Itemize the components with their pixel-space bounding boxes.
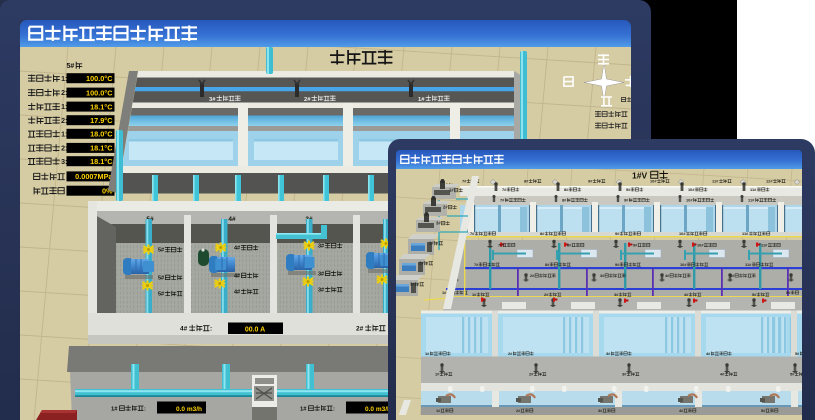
svg-text:12#: 12#	[766, 178, 773, 183]
svg-text:100.0°C: 100.0°C	[86, 74, 113, 83]
svg-text:3#: 3#	[436, 221, 441, 226]
svg-text:2#: 2#	[419, 261, 424, 266]
svg-text:4#: 4#	[234, 273, 240, 279]
svg-text:2#: 2#	[304, 97, 311, 103]
svg-text:1:: 1:	[61, 131, 67, 138]
svg-text:3#: 3#	[318, 244, 324, 250]
svg-text:3#: 3#	[209, 97, 216, 103]
svg-text:10#: 10#	[697, 242, 704, 247]
svg-text:10#: 10#	[688, 187, 695, 192]
svg-text:11#: 11#	[750, 187, 757, 192]
svg-text:11#: 11#	[742, 231, 749, 236]
svg-text:3#: 3#	[410, 282, 415, 287]
svg-text:1#V: 1#V	[632, 171, 647, 181]
svg-text:1#: 1#	[449, 188, 454, 193]
svg-text::: :	[333, 406, 335, 412]
svg-text:3:: 3:	[61, 159, 67, 166]
svg-text:1#: 1#	[111, 406, 118, 412]
svg-text:3#: 3#	[318, 271, 324, 277]
svg-text:10#: 10#	[650, 178, 657, 183]
svg-text:11#: 11#	[748, 197, 755, 202]
svg-text:18.0°C: 18.0°C	[90, 130, 113, 139]
svg-text:0.0 m3/h: 0.0 m3/h	[176, 406, 202, 413]
svg-text:9#: 9#	[588, 178, 593, 183]
svg-text:11#: 11#	[745, 262, 752, 267]
svg-text:100.0°C: 100.0°C	[86, 88, 113, 97]
svg-text:5#: 5#	[158, 275, 164, 281]
svg-text:4#: 4#	[234, 289, 240, 295]
svg-text:2:: 2:	[61, 118, 67, 125]
svg-text:4#: 4#	[234, 246, 240, 252]
svg-text:2#: 2#	[356, 326, 364, 333]
svg-text:2#: 2#	[443, 205, 448, 210]
svg-text:1:: 1:	[61, 76, 67, 83]
svg-text:4#: 4#	[180, 326, 188, 333]
svg-text:11#: 11#	[712, 178, 719, 183]
svg-text:18.1°C: 18.1°C	[90, 144, 113, 153]
svg-text:10#: 10#	[680, 262, 687, 267]
svg-text:7#: 7#	[462, 178, 467, 183]
svg-text:3#: 3#	[318, 287, 324, 293]
svg-text:2:: 2:	[61, 90, 67, 97]
svg-text::: :	[144, 406, 146, 412]
svg-text:10#: 10#	[679, 231, 686, 236]
svg-text:5#: 5#	[158, 248, 164, 254]
svg-text::: :	[210, 326, 212, 333]
svg-text:4#: 4#	[228, 216, 236, 223]
svg-text:18.1°C: 18.1°C	[90, 102, 113, 111]
svg-text:1#: 1#	[300, 406, 307, 412]
svg-text:5#: 5#	[158, 291, 164, 297]
svg-text:5#: 5#	[67, 63, 75, 70]
svg-text:17.9°C: 17.9°C	[90, 116, 113, 125]
svg-text:1#: 1#	[429, 241, 434, 246]
svg-text:1:: 1:	[61, 104, 67, 111]
svg-text:00.0 A: 00.0 A	[245, 327, 265, 334]
svg-text:18.1°C: 18.1°C	[90, 157, 113, 166]
svg-text:0.0007MPa: 0.0007MPa	[75, 172, 113, 181]
svg-text:1#: 1#	[418, 97, 425, 103]
svg-text:8#: 8#	[524, 178, 529, 183]
svg-text:11#: 11#	[761, 242, 768, 247]
svg-text:2:: 2:	[61, 146, 67, 153]
svg-text:10#: 10#	[686, 197, 693, 202]
